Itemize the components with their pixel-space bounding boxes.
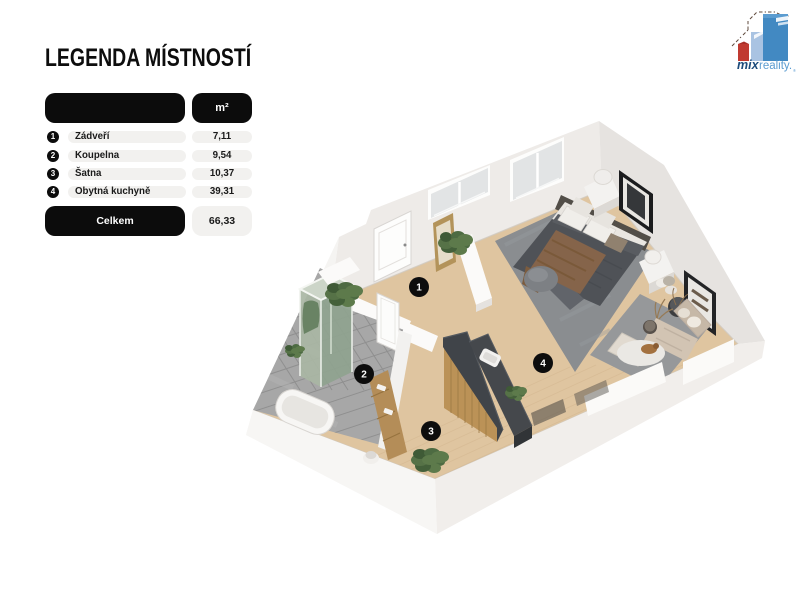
svg-text:4: 4 xyxy=(540,359,546,370)
svg-text:1: 1 xyxy=(416,283,422,294)
svg-text:3: 3 xyxy=(428,427,434,438)
svg-text:2: 2 xyxy=(361,370,367,381)
